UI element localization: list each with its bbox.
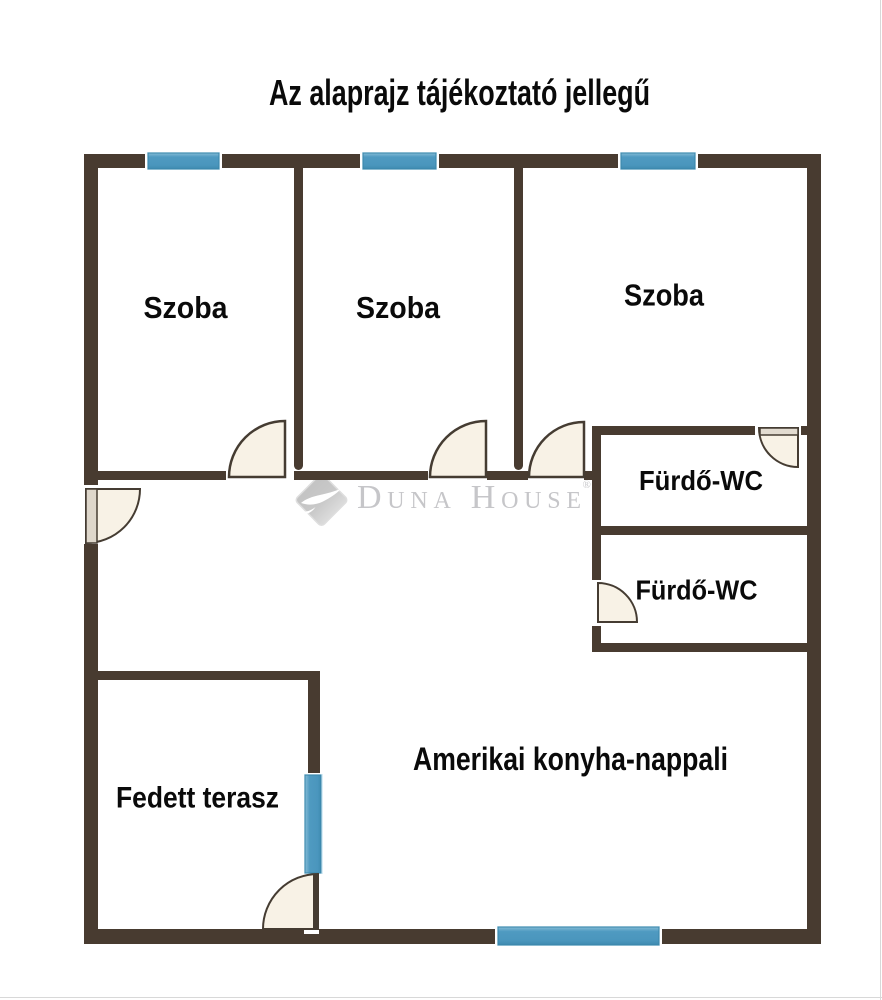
svg-text:Amerikai konyha-nappali: Amerikai konyha-nappali — [413, 741, 728, 777]
svg-text:Szoba: Szoba — [144, 290, 229, 325]
svg-text:Szoba: Szoba — [624, 278, 705, 313]
svg-text:Fürdő-WC: Fürdő-WC — [636, 575, 758, 606]
svg-text:®: ® — [583, 479, 591, 491]
svg-text:Fedett terasz: Fedett terasz — [116, 782, 279, 815]
svg-text:Fürdő-WC: Fürdő-WC — [639, 465, 763, 496]
svg-text:Szoba: Szoba — [356, 290, 441, 325]
svg-text:Az alaprajz tájékoztató jelleg: Az alaprajz tájékoztató jellegű — [269, 72, 650, 113]
